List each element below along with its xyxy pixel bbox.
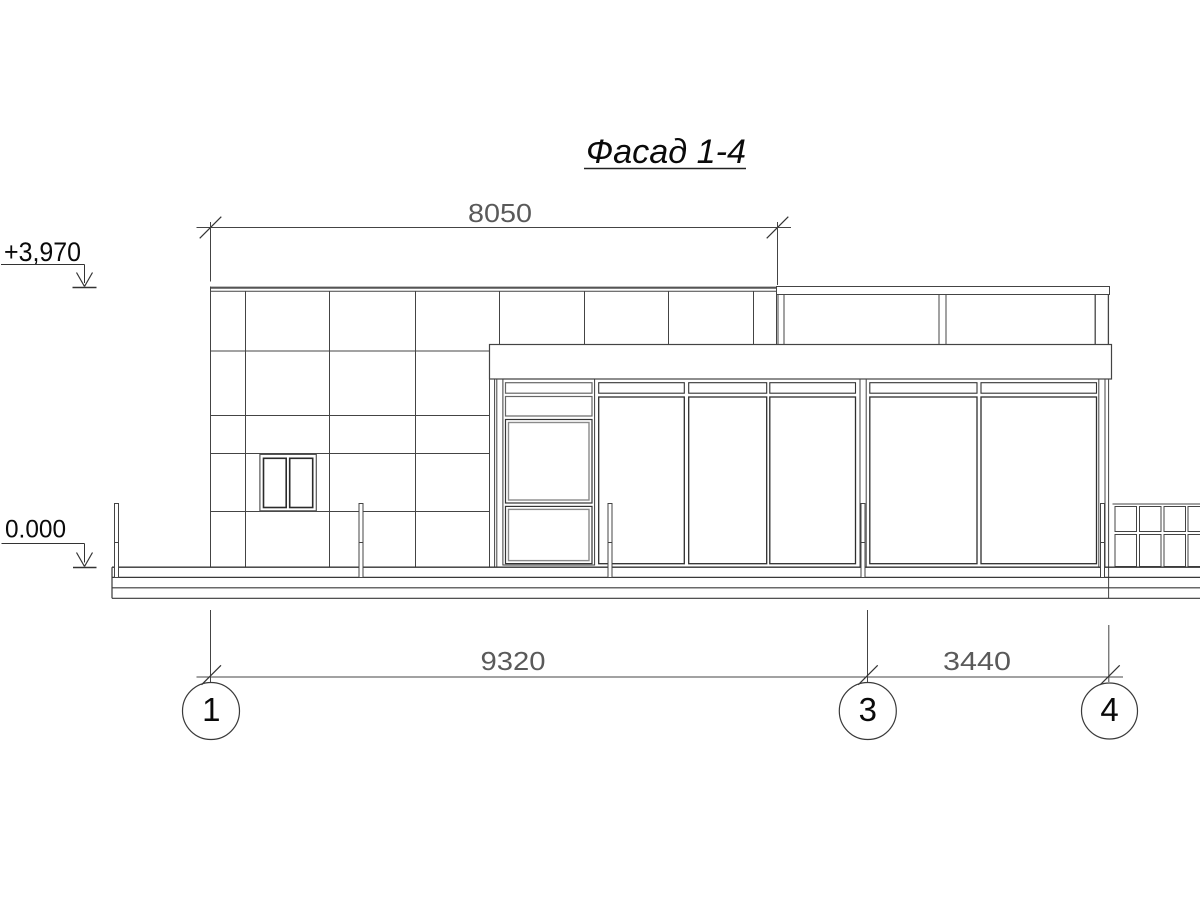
svg-text:1: 1 <box>202 691 220 728</box>
svg-text:3440: 3440 <box>943 646 1011 676</box>
svg-text:8050: 8050 <box>468 198 532 228</box>
svg-text:0.000: 0.000 <box>5 516 66 544</box>
svg-text:Фасад 1-4: Фасад 1-4 <box>586 133 746 171</box>
svg-text:4: 4 <box>1100 691 1118 728</box>
svg-text:9320: 9320 <box>481 646 546 676</box>
svg-text:+3,970: +3,970 <box>4 237 81 267</box>
svg-text:3: 3 <box>859 691 877 728</box>
